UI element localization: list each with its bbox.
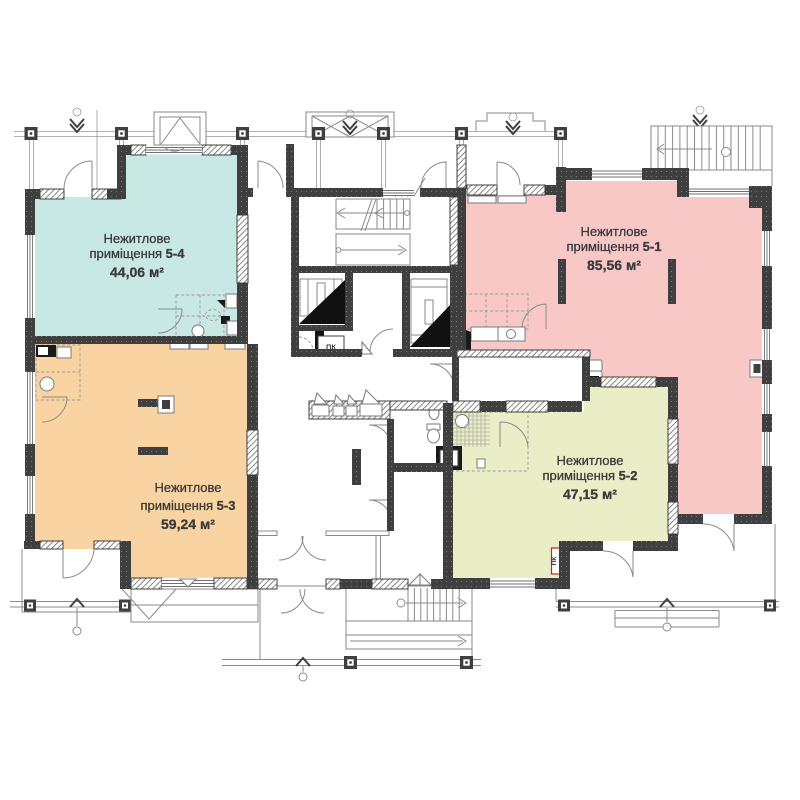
svg-text:44,06 м²: 44,06 м² <box>110 264 164 280</box>
svg-text:приміщення 5-4: приміщення 5-4 <box>90 246 186 261</box>
svg-text:59,24 м²: 59,24 м² <box>161 516 215 532</box>
svg-text:85,56 м²: 85,56 м² <box>587 257 641 273</box>
svg-text:приміщення 5-3: приміщення 5-3 <box>141 498 236 513</box>
svg-text:Нежитлове: Нежитлове <box>103 231 170 246</box>
svg-text:приміщення 5-2: приміщення 5-2 <box>543 468 638 483</box>
svg-text:Нежитлове: Нежитлове <box>154 480 221 495</box>
svg-text:47,15 м²: 47,15 м² <box>563 486 617 502</box>
svg-text:приміщення 5-1: приміщення 5-1 <box>567 239 662 254</box>
svg-text:ПК: ПК <box>551 557 558 566</box>
svg-text:Нежитлове: Нежитлове <box>580 224 647 239</box>
svg-text:Нежитлове: Нежитлове <box>556 453 623 468</box>
